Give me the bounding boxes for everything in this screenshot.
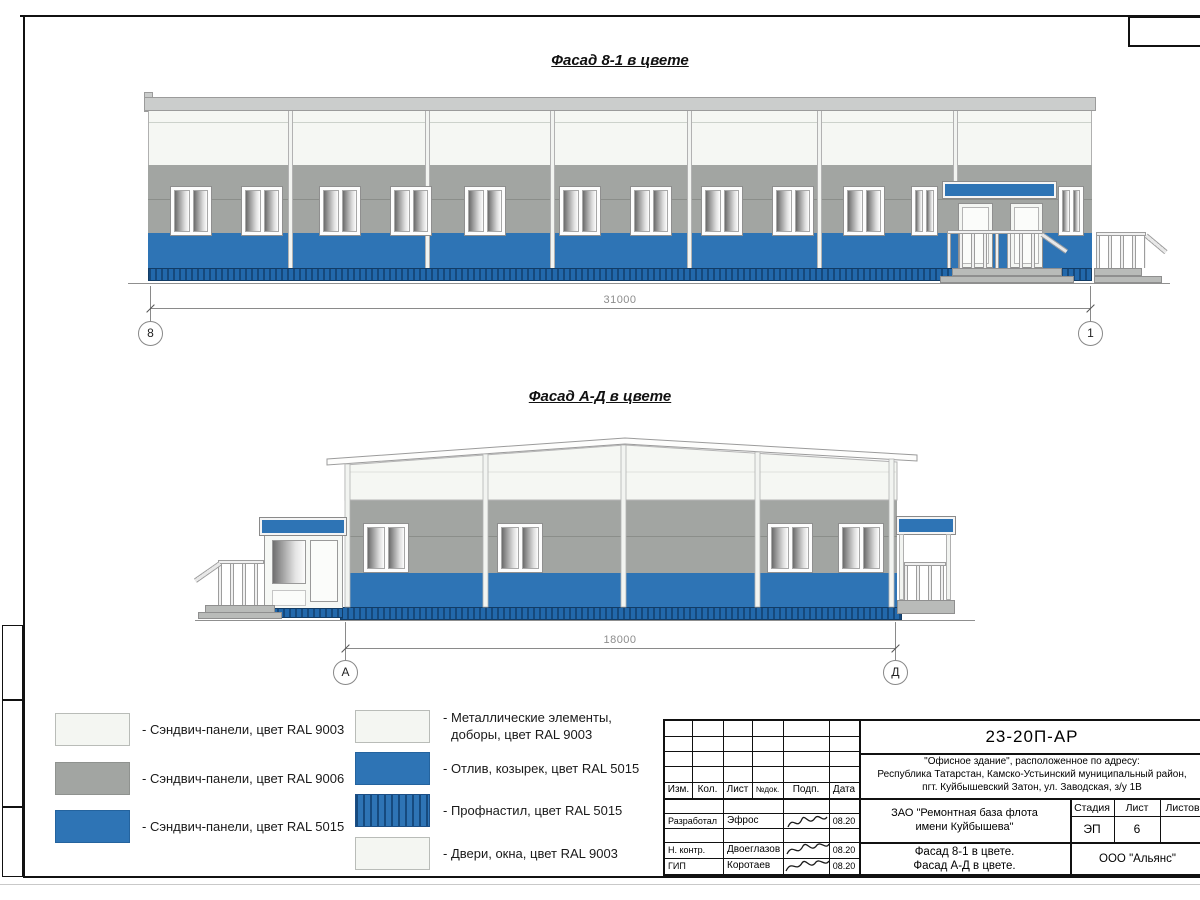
dimension-line [150, 308, 1090, 309]
vestibule-step [198, 612, 282, 619]
stamp-col-list: Лист [723, 782, 752, 798]
stamp-line [665, 766, 859, 767]
vestibule-panel [272, 590, 306, 606]
stamp-sheet-label: Лист [1114, 799, 1160, 816]
dimension-value: 31000 [570, 294, 670, 306]
stamp-col-podp: Подп. [783, 782, 829, 798]
window [559, 186, 601, 236]
roof-cap [144, 97, 1096, 111]
stamp-date: 08.20 [829, 813, 859, 828]
stamp-client-line1: ЗАО "Ремонтная база флота [891, 807, 1038, 819]
porch-post [946, 534, 951, 600]
window [363, 523, 409, 573]
ground-line [195, 620, 975, 621]
window-narrow [911, 186, 938, 236]
window [630, 186, 672, 236]
stamp-client-line2: имени Куйбышева" [915, 821, 1013, 833]
stamp-stage-value: ЭП [1070, 816, 1114, 842]
stairs-step [1094, 268, 1142, 276]
window [843, 186, 885, 236]
dimension-line [345, 648, 895, 649]
frame-side-box-3 [2, 807, 23, 877]
porch-railing [904, 566, 946, 600]
stamp-line [665, 736, 859, 737]
stamp-address-line2: Республика Татарстан, Камско-Устьинский … [877, 769, 1186, 780]
extension-line [150, 286, 151, 322]
stamp-subject-line2: Фасад А-Д в цвете. [913, 860, 1015, 872]
frame-bottom-line [23, 876, 1200, 878]
axis-marker-1: 1 [1078, 321, 1103, 346]
title-block: Изм. Кол. Лист №док. Подп. Дата Разработ… [663, 719, 1200, 876]
extension-line [895, 622, 896, 660]
frame-corner-box [1128, 16, 1200, 47]
window [838, 523, 884, 573]
window-narrow [1058, 186, 1084, 236]
window [464, 186, 506, 236]
pilaster [953, 111, 958, 182]
stamp-col-izm: Изм. [665, 782, 692, 798]
legend-label: - Отлив, козырек, цвет RAL 5015 [443, 760, 673, 777]
stamp-role: ГИП [666, 858, 723, 874]
frame-side-box-2 [2, 700, 23, 807]
stamp-stage-label: Стадия [1070, 799, 1114, 816]
frame-left-line [23, 15, 25, 878]
frame-side-box-1 [2, 625, 23, 700]
pilaster [687, 111, 692, 268]
legend-label-line: - Металлические элементы, [443, 710, 612, 725]
pilaster [550, 111, 555, 268]
stamp-subject: Фасад 8-1 в цвете. Фасад А-Д в цвете. [859, 844, 1070, 874]
vestibule-door [310, 540, 338, 602]
signature [785, 811, 829, 833]
window [701, 186, 743, 236]
ground-line [128, 283, 1170, 284]
window [319, 186, 361, 236]
stamp-col-data: Дата [829, 782, 859, 798]
legend-label-line: доборы, цвет RAL 9003 [443, 727, 592, 742]
stamp-address-line3: пгт. Куйбышевский Затон, ул. Заводская, … [922, 782, 1142, 793]
facade1-title: Фасад 8-1 в цвете [450, 52, 790, 69]
stamp-name: Эфрос [724, 813, 783, 828]
stamp-role: Разработал [666, 813, 723, 828]
stamp-address-line1: "Офисное здание", расположенное по адрес… [924, 756, 1140, 767]
legend-swatch-white [355, 837, 430, 870]
legend-label: - Двери, окна, цвет RAL 9003 [443, 845, 673, 862]
extension-line [345, 622, 346, 660]
stamp-subject-line1: Фасад 8-1 в цвете. [915, 846, 1015, 858]
vestibule-canopy [260, 518, 346, 535]
stamp-role: Н. контр. [666, 842, 723, 858]
stairs-railing-slope [1145, 234, 1167, 253]
porch-canopy [897, 517, 955, 534]
window [390, 186, 432, 236]
porch-step [897, 600, 955, 614]
stamp-address: "Офисное здание", расположенное по адрес… [861, 755, 1200, 796]
legend-swatch-blue [55, 810, 130, 843]
legend-label: - Металлические элементы, доборы, цвет R… [443, 709, 673, 743]
window [497, 523, 543, 573]
legend-swatch-blue [355, 752, 430, 785]
legend-swatch-white [355, 710, 430, 743]
entrance-step [940, 276, 1074, 283]
legend-swatch-gray [55, 762, 130, 795]
dimension-value: 18000 [570, 634, 670, 646]
stamp-line [665, 828, 859, 829]
axis-marker-8: 8 [138, 321, 163, 346]
entrance-railing [947, 234, 1043, 268]
window [772, 186, 814, 236]
stamp-name: Двоеглазов [724, 842, 783, 858]
entrance-step [952, 268, 1062, 276]
stamp-sheets-label: Листов [1160, 799, 1200, 816]
vestibule-railing [218, 564, 264, 605]
stamp-company: ООО "Альянс" [1070, 844, 1200, 874]
facade2-title: Фасад А-Д в цвете [430, 388, 770, 405]
drawing-sheet: Фасад 8-1 в цвете [0, 0, 1200, 900]
window [767, 523, 813, 573]
window [241, 186, 283, 236]
stamp-sheet-value: 6 [1114, 816, 1160, 842]
stamp-name: Коротаев [724, 858, 783, 874]
window [170, 186, 212, 236]
vestibule-glazing [272, 540, 306, 584]
sheet-edge-line [0, 884, 1200, 885]
axis-marker-d: Д [883, 660, 908, 685]
stamp-line [665, 751, 859, 752]
entrance-canopy [943, 182, 1056, 198]
frame-top-line [20, 15, 1200, 17]
stairs-railing [1096, 236, 1146, 268]
stamp-doc-number: 23-20П-АР [859, 723, 1200, 751]
legend-swatch-profnastil [355, 794, 430, 827]
stairs-step [1094, 276, 1162, 283]
legend-label: - Профнастил, цвет RAL 5015 [443, 802, 673, 819]
stamp-date: 08.20 [829, 842, 859, 858]
pilaster [288, 111, 293, 268]
extension-line [1090, 286, 1091, 322]
stamp-client: ЗАО "Ремонтная база флота имени Куйбышев… [859, 800, 1070, 840]
axis-marker-a: А [333, 660, 358, 685]
signature [783, 856, 831, 876]
stamp-col-kol: Кол. [692, 782, 723, 798]
legend-swatch-white [55, 713, 130, 746]
pilaster [817, 111, 822, 268]
stamp-date: 08.20 [829, 858, 859, 874]
stamp-col-ndok: №док. [752, 782, 783, 798]
